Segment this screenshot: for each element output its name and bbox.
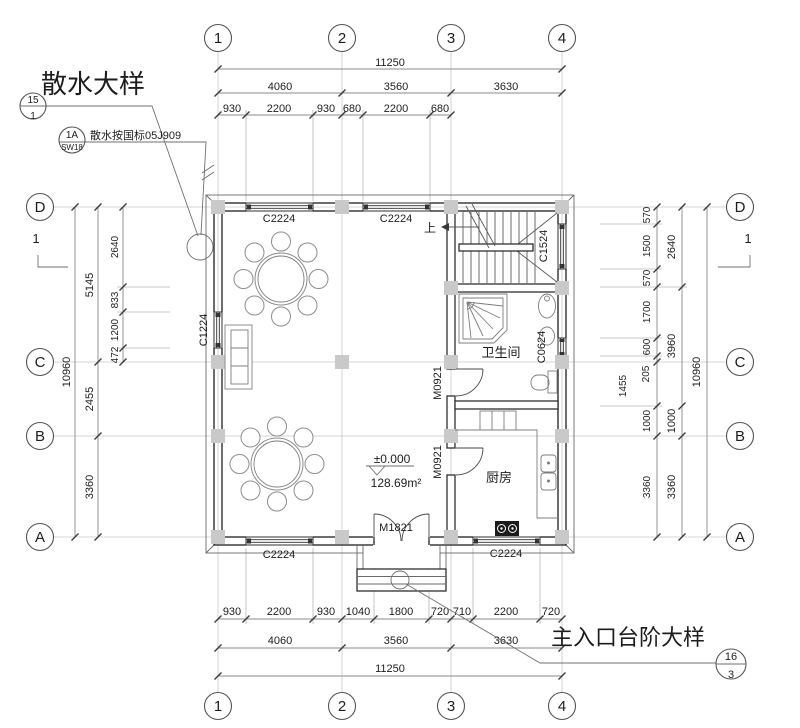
grid-axis-label: 4	[558, 698, 566, 715]
grid-bubbles-bottom: 1 2 3 4	[205, 693, 576, 720]
dim-label: 600	[642, 338, 653, 355]
grid-bubbles-top: 1 2 3 4	[205, 25, 576, 52]
dim-label: 10960	[691, 357, 703, 388]
door-label: M1821	[379, 522, 413, 534]
dim-label: 2455	[84, 387, 96, 411]
grid-axis-label: D	[735, 199, 746, 216]
room-label-kitchen: 厨房	[486, 470, 512, 485]
grid-bubbles-right: D C B A	[727, 194, 754, 551]
note-ref-number: 1A	[66, 130, 79, 141]
grid-bubbles-left: D C B A	[27, 194, 54, 551]
dim-label: 2640	[666, 235, 678, 259]
level-marker: ±0.000 128.69m²	[366, 452, 421, 490]
dim-label: 930	[223, 606, 241, 618]
dim-label: 5145	[84, 273, 96, 297]
dim-label: 1800	[389, 606, 413, 618]
room-label-bathroom: 卫生间	[481, 345, 520, 360]
dim-label: 930	[317, 606, 335, 618]
floor-plan-drawing: 11250 4060 3560 3630 930 2200 930 680 22…	[0, 0, 800, 728]
window-label: C2224	[263, 213, 295, 225]
window-label: C0624	[536, 331, 548, 363]
dim-label: 4060	[268, 81, 292, 93]
detail-target-circle	[187, 234, 213, 260]
dim-label: 3630	[494, 81, 518, 93]
window-right-c1524	[557, 224, 567, 269]
dim-label: 680	[343, 103, 361, 115]
dim-label: 1040	[346, 606, 370, 618]
grid-axis-label: A	[735, 529, 745, 546]
dim-label: 680	[431, 103, 449, 115]
dim-label: 930	[223, 103, 241, 115]
section-marker-left: 1	[32, 231, 68, 267]
dim-label: 570	[642, 206, 653, 223]
dim-label: 720	[542, 606, 560, 618]
kitchen-counter	[455, 411, 558, 518]
dim-label: 205	[641, 365, 652, 382]
detail-ref-number: 15	[27, 95, 39, 106]
dim-label: 3360	[642, 475, 653, 498]
dims-left: 10960 5145 2455 3360 2640 833 1200 472	[61, 235, 121, 499]
grid-axis-label: B	[735, 428, 745, 445]
grid-axis-label: C	[35, 354, 46, 371]
dim-label: 833	[110, 291, 121, 308]
dims-top: 11250 4060 3560 3630 930 2200 930 680 22…	[223, 57, 518, 115]
dim-label: 11250	[375, 57, 405, 69]
stair-up-arrow	[441, 223, 449, 231]
floor-level-label: ±0.000	[374, 452, 411, 466]
dim-label: 1000	[666, 409, 678, 433]
dim-label: 1500	[642, 234, 653, 257]
grid-axis-label: 2	[338, 30, 346, 47]
dims-bottom: 930 2200 930 1040 1800 720 710 2200 720 …	[223, 606, 560, 675]
grid-axis-label: 3	[447, 30, 455, 47]
stove	[495, 521, 519, 536]
dim-label: 3360	[666, 475, 678, 499]
window-label: C1524	[538, 230, 550, 262]
dim-label: 3960	[666, 334, 678, 358]
grid-axis-label: 2	[338, 698, 346, 715]
door-label: M0921	[432, 445, 444, 479]
window-bottom-left	[246, 536, 313, 546]
splash-apron-note: 散水按国标05J909	[90, 128, 181, 142]
window-bottom-right	[473, 536, 540, 546]
detail-ref-sheet: 1	[30, 111, 36, 122]
grid-axis-label: 1	[214, 30, 222, 47]
grid-axis-label: 3	[447, 698, 455, 715]
toilet	[531, 371, 557, 393]
dim-label: 3360	[84, 475, 96, 499]
dim-label: 2640	[110, 235, 121, 258]
note-ref-sheet: SW18	[61, 143, 83, 152]
splash-apron-callout: 散水大样 15 1 1A SW18 散水按国标05J909	[20, 69, 213, 260]
stair-up-label: 上	[424, 221, 436, 235]
dim-label: 710	[453, 606, 471, 618]
window-top-left	[246, 202, 313, 212]
dim-label: 570	[642, 269, 653, 286]
dim-label: 3560	[384, 635, 408, 647]
window-label: C2224	[263, 549, 295, 561]
dim-label: 930	[317, 103, 335, 115]
dim-label: 11250	[375, 663, 405, 675]
door-label: M0921	[432, 366, 444, 400]
dim-label: 2200	[267, 103, 291, 115]
kitchen-door-m0921	[456, 448, 483, 475]
window-right-c0624	[557, 338, 567, 356]
dim-label: 1200	[110, 318, 121, 341]
grid-lines	[53, 51, 727, 693]
dim-label: 2200	[384, 103, 408, 115]
shower	[459, 294, 507, 343]
section-number: 1	[744, 231, 751, 246]
grid-axis-label: D	[35, 199, 46, 216]
dim-label: 4060	[268, 635, 292, 647]
dim-label: 2200	[494, 606, 518, 618]
grid-axis-label: 4	[558, 30, 566, 47]
dim-label: 1455	[618, 374, 629, 397]
grid-axis-label: B	[35, 428, 45, 445]
window-top-right	[363, 202, 430, 212]
dining-table-upper	[234, 232, 328, 326]
bathroom-door-m0921	[456, 369, 483, 396]
window-left-c1224	[213, 312, 223, 348]
dim-label: 2200	[267, 606, 291, 618]
exterior-walls	[214, 203, 566, 545]
section-marker-right: 1	[718, 231, 752, 267]
kitchen-sink	[541, 455, 556, 490]
window-label: C2224	[490, 548, 522, 560]
grid-axis-label: 1	[214, 698, 222, 715]
window-label: C2224	[380, 213, 412, 225]
detail-title-entrance: 主入口台阶大样	[551, 625, 705, 650]
dim-label: 3630	[494, 635, 518, 647]
entrance-steps	[357, 545, 446, 591]
dim-label: 1700	[642, 300, 653, 323]
dim-label: 1000	[642, 409, 653, 432]
sideboard	[225, 325, 252, 389]
dim-label: 472	[110, 346, 121, 363]
floor-plan-svg: 11250 4060 3560 3630 930 2200 930 680 22…	[0, 0, 800, 728]
section-number: 1	[32, 231, 39, 246]
detail-ref-sheet: 3	[728, 669, 734, 681]
grid-axis-label: C	[735, 354, 746, 371]
detail-title-sanshui: 散水大样	[41, 69, 145, 99]
detail-ref-number: 16	[725, 651, 737, 663]
dim-label: 3560	[384, 81, 408, 93]
grid-axis-label: A	[35, 529, 45, 546]
dining-table-lower	[230, 417, 324, 511]
dim-label: 10960	[61, 357, 73, 388]
window-label: C1224	[198, 314, 210, 346]
floor-area-label: 128.69m²	[371, 476, 422, 490]
